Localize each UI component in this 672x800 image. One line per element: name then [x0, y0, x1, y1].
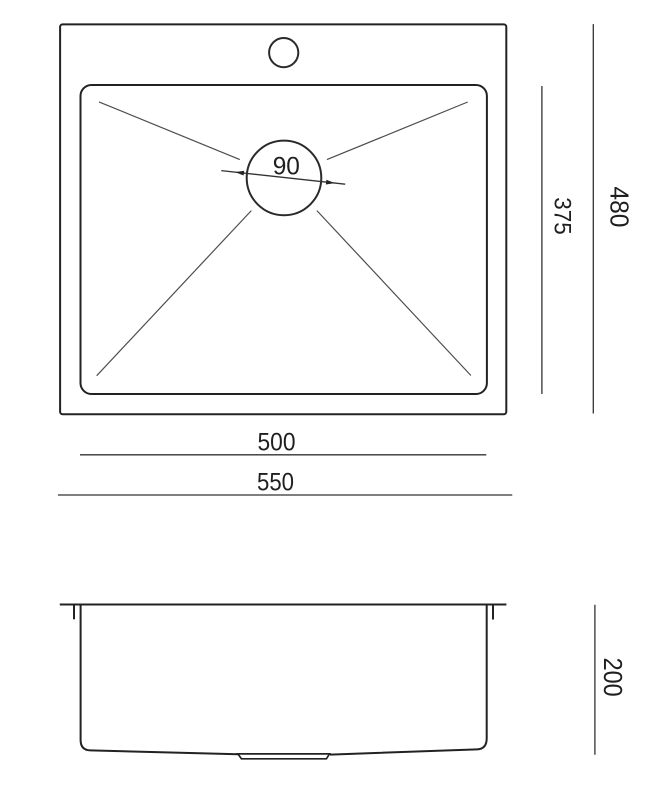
svg-text:375: 375	[549, 197, 576, 235]
svg-text:500: 500	[258, 429, 296, 457]
svg-text:200: 200	[598, 658, 626, 697]
svg-text:90: 90	[273, 153, 300, 181]
svg-text:550: 550	[257, 469, 294, 497]
svg-text:480: 480	[605, 186, 633, 227]
